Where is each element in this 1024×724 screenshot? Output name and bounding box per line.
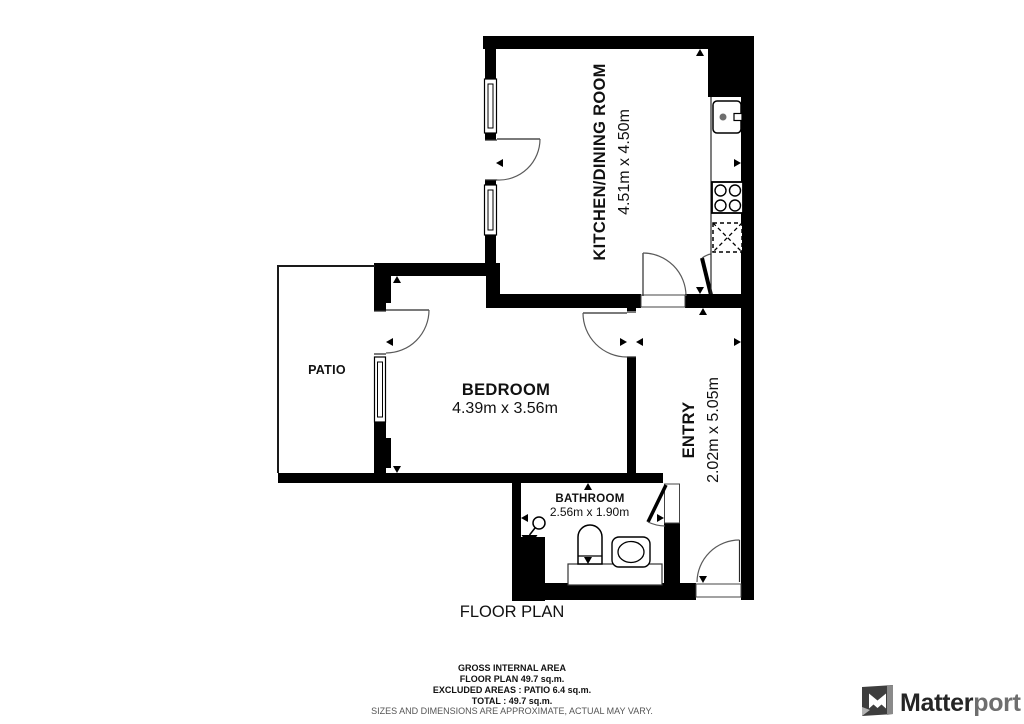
room-dims-kitchen: 4.51m x 4.50m xyxy=(616,109,633,215)
windows xyxy=(375,79,497,422)
dishwasher-icon xyxy=(713,223,742,252)
door-bedroom-patio xyxy=(374,310,429,354)
door-front xyxy=(696,540,741,597)
room-dims-bathroom: 2.56m x 1.90m xyxy=(550,505,629,519)
room-label-patio: PATIO xyxy=(308,363,346,377)
footer: GROSS INTERNAL AREA FLOOR PLAN 49.7 sq.m… xyxy=(371,663,653,716)
footer-line-4: TOTAL : 49.7 sq.m. xyxy=(472,696,553,706)
door-bedroom-entry xyxy=(583,312,636,357)
window-bedroom-patio xyxy=(375,357,386,422)
door-kitchen-counter xyxy=(702,254,711,295)
door-bathroom xyxy=(648,484,680,526)
footer-disclaimer: SIZES AND DIMENSIONS ARE APPROXIMATE, AC… xyxy=(371,706,653,716)
basin-icon xyxy=(612,537,650,567)
matterport-logo-icon xyxy=(862,685,893,716)
shower-icon xyxy=(522,517,546,540)
logo-text-secondary: port xyxy=(973,689,1021,717)
floor-plan-page: KITCHEN/DINING ROOM 4.51m x 4.50m BEDROO… xyxy=(0,0,1024,724)
room-label-entry: ENTRY xyxy=(680,402,698,459)
door-kitchen-left xyxy=(485,139,540,180)
vanity-counter xyxy=(568,564,662,585)
stove-icon xyxy=(712,182,743,213)
room-dims-bedroom: 4.39m x 3.56m xyxy=(452,400,558,417)
floor-plan-svg: KITCHEN/DINING ROOM 4.51m x 4.50m BEDROO… xyxy=(0,0,1024,724)
sink-icon xyxy=(713,101,742,133)
room-label-bedroom: BEDROOM xyxy=(462,381,550,399)
room-dims-entry: 2.02m x 5.05m xyxy=(705,377,722,483)
matterport-logo: Matterport xyxy=(862,685,1022,717)
door-kitchen-interior xyxy=(641,253,686,307)
doors xyxy=(374,139,741,597)
logo-text-primary: Matter xyxy=(900,689,974,717)
footer-line-1: GROSS INTERNAL AREA xyxy=(458,663,567,673)
footer-line-3: EXCLUDED AREAS : PATIO 6.4 sq.m. xyxy=(433,685,591,695)
walls xyxy=(278,36,754,601)
window-kitchen-lower xyxy=(485,185,497,235)
floor-plan-title: FLOOR PLAN xyxy=(460,603,565,621)
kitchen-fixtures xyxy=(711,97,743,294)
footer-line-2: FLOOR PLAN 49.7 sq.m. xyxy=(460,674,565,684)
window-kitchen-upper xyxy=(485,79,497,133)
room-label-kitchen: KITCHEN/DINING ROOM xyxy=(591,63,609,260)
room-label-bathroom: BATHROOM xyxy=(555,493,624,505)
matterport-logo-text: Matterport xyxy=(900,689,1022,717)
